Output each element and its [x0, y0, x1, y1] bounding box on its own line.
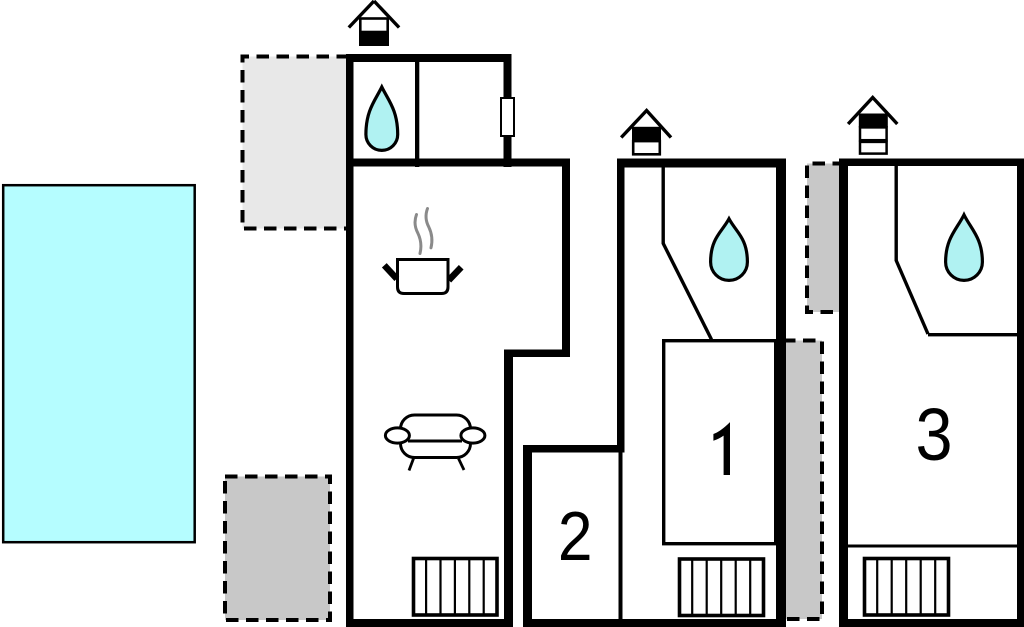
- svg-text:2: 2: [558, 498, 593, 576]
- svg-text:3: 3: [915, 393, 952, 476]
